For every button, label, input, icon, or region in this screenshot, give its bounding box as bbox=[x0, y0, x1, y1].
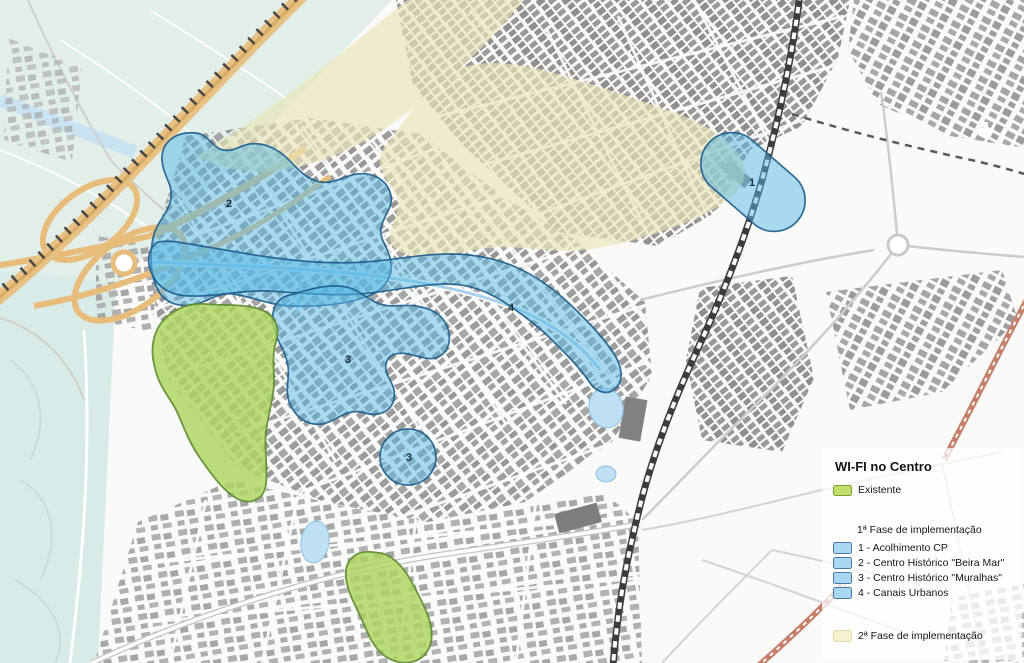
wifi-map-screenshot: 1 2 3 3 4 WI-FI no Centro Existente 1ª F… bbox=[0, 0, 1024, 663]
zone-label-4: 4 bbox=[508, 302, 515, 314]
zone2-label: 2 - Centro Histórico "Beira Mar" bbox=[858, 557, 1004, 569]
roundabout-west bbox=[113, 252, 135, 274]
legend-item-phase2: 2ª Fase de implementação bbox=[833, 630, 983, 642]
zone2-swatch bbox=[833, 557, 852, 569]
zone-label-3a: 3 bbox=[345, 354, 351, 366]
legend-item-zone4: 4 - Canais Urbanos bbox=[833, 587, 948, 599]
legend-phase1-title: 1ª Fase de implementação bbox=[857, 524, 982, 536]
zone-label-3b: 3 bbox=[406, 452, 412, 464]
existing-swatch bbox=[833, 485, 852, 496]
existing-label: Existente bbox=[858, 484, 901, 496]
zone4-swatch bbox=[833, 587, 852, 599]
zone3-label: 3 - Centro Histórico "Muralhas" bbox=[858, 572, 1002, 584]
legend-item-zone3: 3 - Centro Histórico "Muralhas" bbox=[833, 572, 1002, 584]
phase2-swatch bbox=[833, 630, 852, 642]
legend-phase2-title: 2ª Fase de implementação bbox=[858, 630, 983, 642]
legend-item-zone1: 1 - Acolhimento CP bbox=[833, 542, 948, 554]
legend-item-zone2: 2 - Centro Histórico "Beira Mar" bbox=[833, 557, 1004, 569]
legend-title: WI-FI no Centro bbox=[835, 459, 932, 474]
zone3-swatch bbox=[833, 572, 852, 584]
zone1-label: 1 - Acolhimento CP bbox=[858, 542, 948, 554]
map-legend: WI-FI no Centro Existente 1ª Fase de imp… bbox=[822, 448, 1022, 660]
legend-item-existing: Existente bbox=[833, 484, 901, 496]
zone1-swatch bbox=[833, 542, 852, 554]
zone-label-2: 2 bbox=[226, 198, 232, 210]
zone-label-1: 1 bbox=[749, 177, 755, 189]
zone4-label: 4 - Canais Urbanos bbox=[858, 587, 948, 599]
roundabout-east bbox=[888, 235, 908, 255]
lagoon-water bbox=[0, 270, 116, 663]
